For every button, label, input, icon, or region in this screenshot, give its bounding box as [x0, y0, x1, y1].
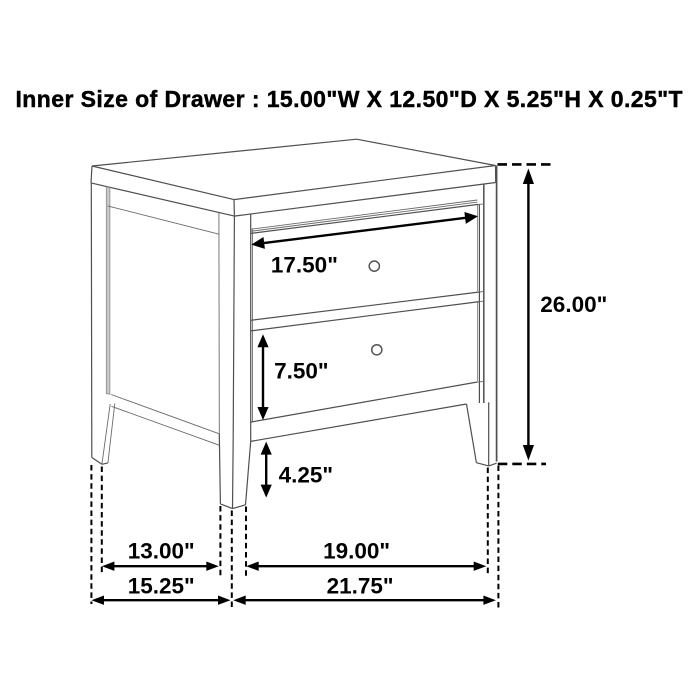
svg-text:13.00": 13.00": [128, 539, 195, 564]
svg-text:26.00": 26.00": [540, 292, 607, 317]
svg-text:4.25": 4.25": [279, 462, 333, 487]
svg-text:17.50": 17.50": [271, 252, 338, 277]
svg-text:15.25": 15.25": [128, 574, 195, 599]
svg-text:Inner Size of Drawer : 15.00"W: Inner Size of Drawer : 15.00"W X 12.50"D…: [16, 86, 684, 112]
svg-text:19.00": 19.00": [323, 539, 390, 564]
svg-text:21.75": 21.75": [327, 574, 394, 599]
svg-text:7.50": 7.50": [274, 358, 328, 383]
